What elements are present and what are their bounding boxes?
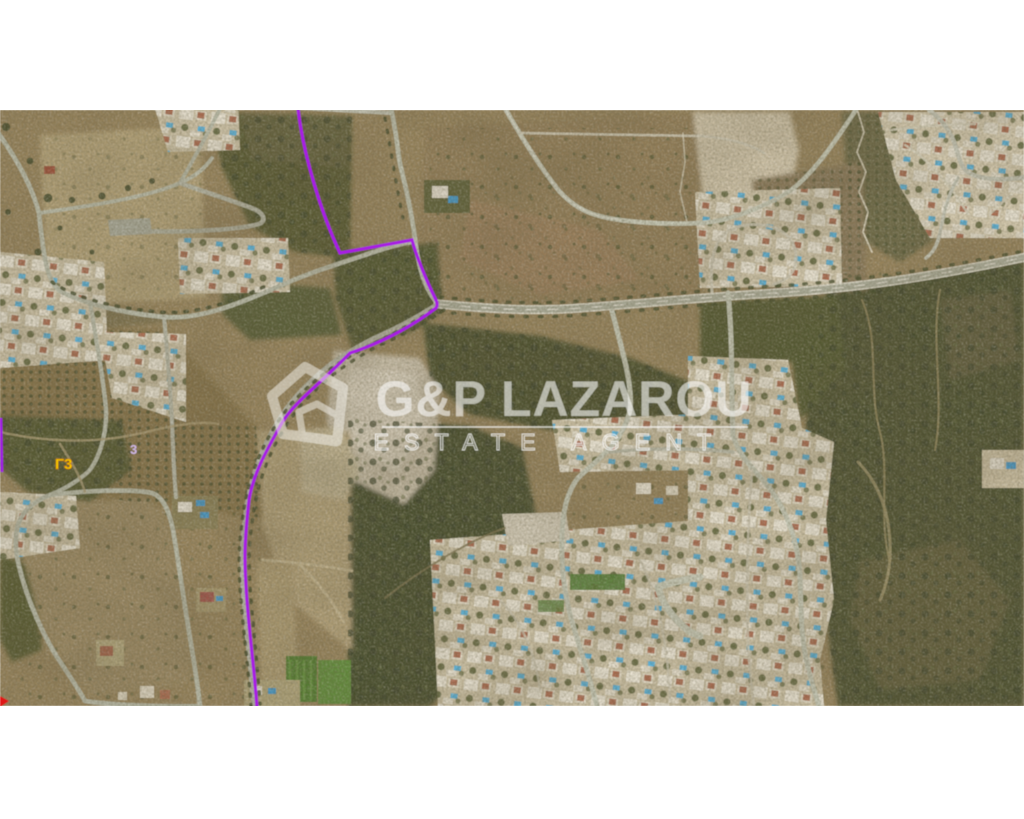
svg-text:Γ3: Γ3 bbox=[55, 456, 72, 473]
svg-text:ESTATE AGENT: ESTATE AGENT bbox=[374, 429, 727, 455]
svg-text:G&P LAZAROU: G&P LAZAROU bbox=[376, 371, 753, 427]
svg-text:3: 3 bbox=[130, 442, 137, 457]
